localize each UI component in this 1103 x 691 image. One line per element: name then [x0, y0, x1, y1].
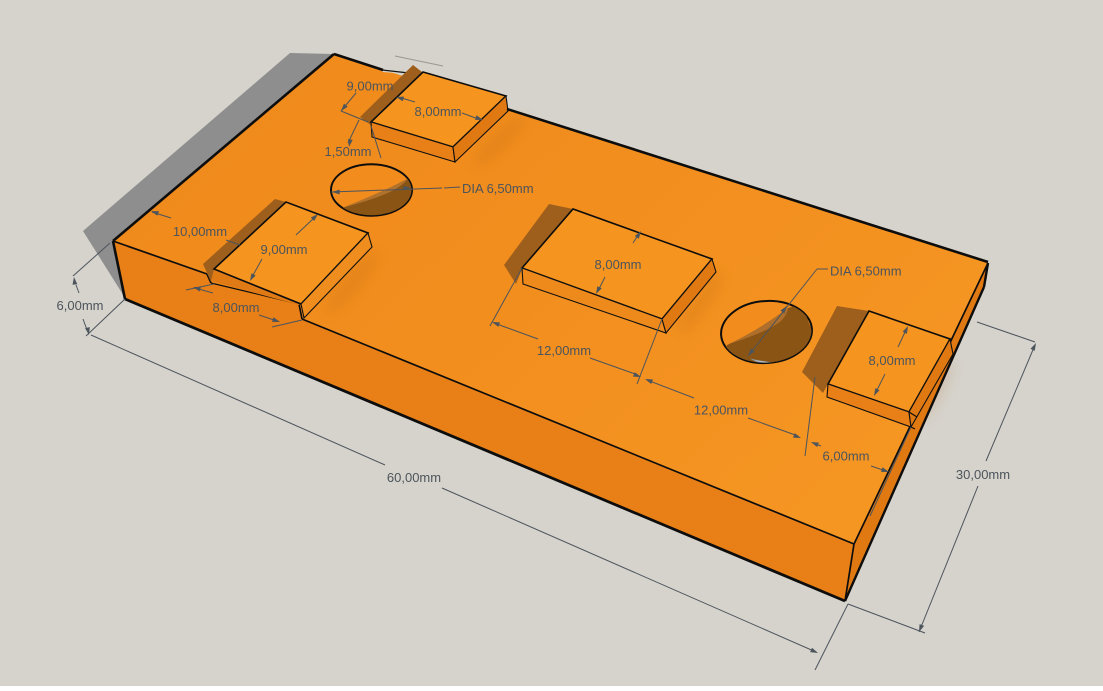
svg-text:8,00mm: 8,00mm — [869, 353, 916, 368]
svg-text:12,00mm: 12,00mm — [537, 343, 591, 358]
svg-text:10,00mm: 10,00mm — [173, 224, 227, 239]
svg-text:60,00mm: 60,00mm — [387, 470, 441, 485]
svg-text:1,50mm: 1,50mm — [325, 144, 372, 159]
svg-text:9,00mm: 9,00mm — [347, 79, 394, 94]
svg-text:8,00mm: 8,00mm — [595, 257, 642, 272]
svg-text:30,00mm: 30,00mm — [956, 467, 1010, 482]
svg-text:DIA 6,50mm: DIA 6,50mm — [830, 264, 902, 279]
svg-text:8,00mm: 8,00mm — [213, 300, 260, 315]
svg-text:DIA 6,50mm: DIA 6,50mm — [462, 181, 534, 196]
svg-text:6,00mm: 6,00mm — [823, 449, 870, 464]
svg-text:12,00mm: 12,00mm — [694, 403, 748, 418]
svg-text:8,00mm: 8,00mm — [415, 104, 462, 119]
svg-text:6,00mm: 6,00mm — [57, 298, 104, 313]
svg-text:9,00mm: 9,00mm — [261, 242, 308, 257]
